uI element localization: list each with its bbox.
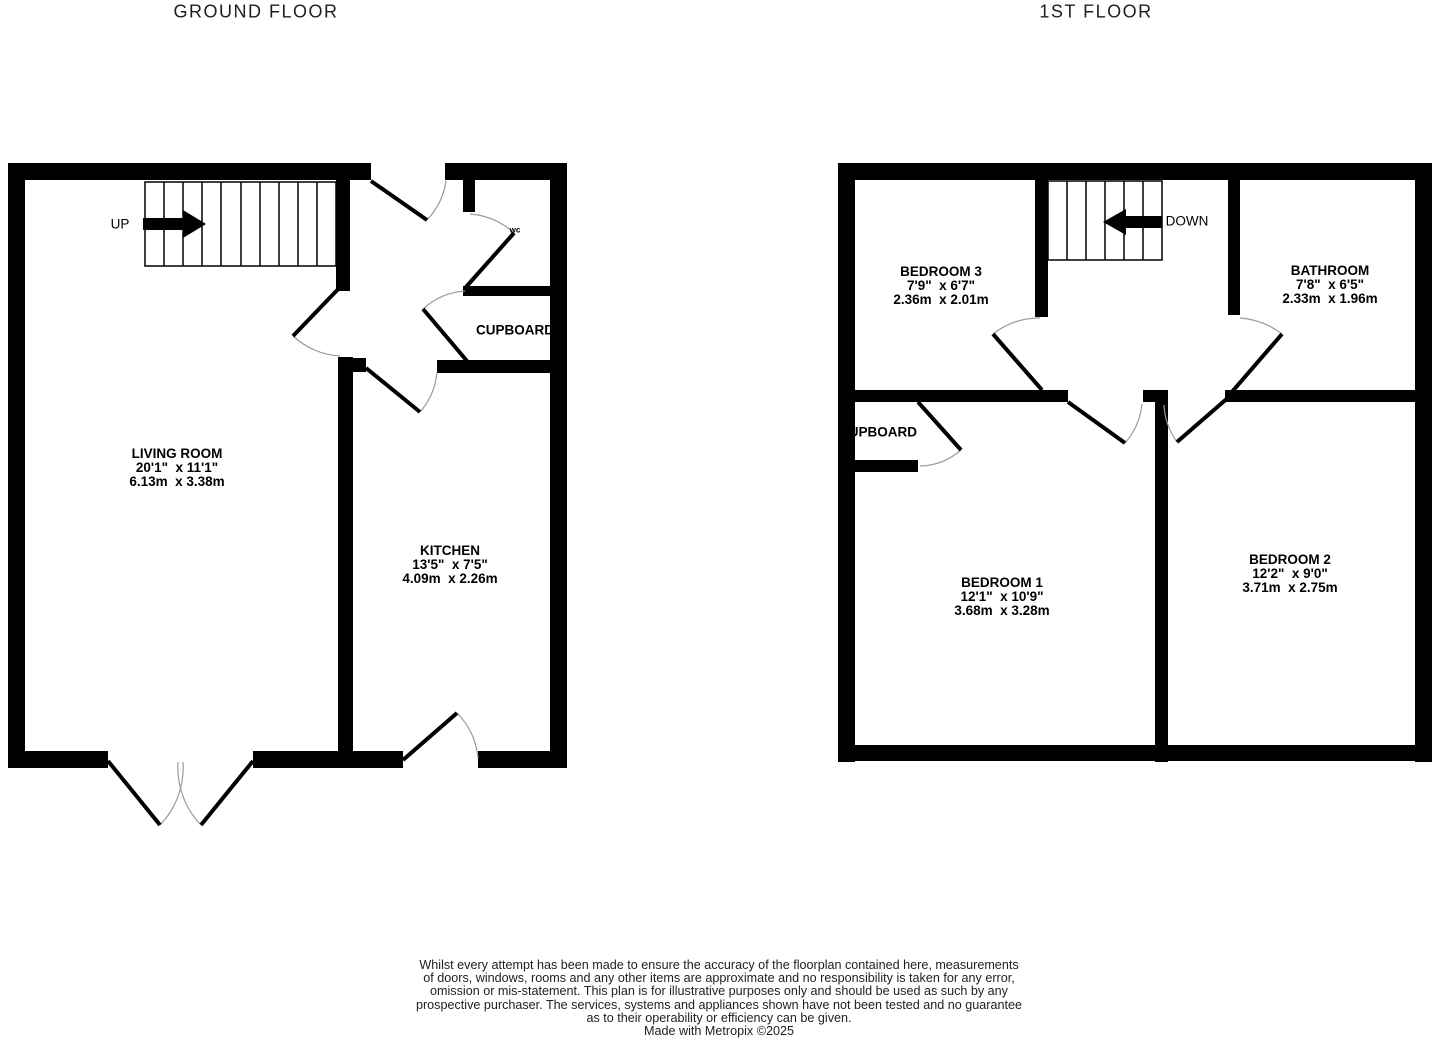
wall — [1225, 390, 1432, 402]
wall — [1228, 163, 1240, 315]
first-floor-plan — [838, 163, 1432, 762]
first-floor-title: 1ST FLOOR — [1039, 2, 1152, 23]
ground-floor-title: GROUND FLOOR — [173, 2, 338, 23]
room-label-cupboard-ground: CUPBOARD — [476, 323, 554, 338]
disclaimer: Whilst every attempt has been made to en… — [416, 959, 1022, 1038]
room-name: BEDROOM 1 — [954, 576, 1049, 590]
wall — [253, 751, 403, 768]
room-name: BEDROOM 2 — [1242, 553, 1337, 567]
room-size-metric: 3.71m x 2.75m — [1242, 581, 1337, 595]
room-size-imperial: 7'9" x 6'7" — [893, 279, 988, 293]
wall — [855, 460, 918, 472]
room-name: BATHROOM — [1282, 264, 1377, 278]
wall — [478, 751, 567, 768]
wall — [550, 163, 567, 768]
wall — [350, 358, 366, 372]
wall — [838, 390, 1068, 402]
wall — [8, 751, 108, 768]
room-size-metric: 3.68m x 3.28m — [954, 604, 1049, 618]
room-size-metric: 6.13m x 3.38m — [129, 475, 224, 489]
disclaimer-line: prospective purchaser. The services, sys… — [416, 999, 1022, 1012]
disclaimer-line: omission or mis-statement. This plan is … — [416, 985, 1022, 998]
room-label-bathroom: BATHROOM 7'8" x 6'5" 2.33m x 1.96m — [1282, 264, 1377, 306]
room-size-imperial: 12'1" x 10'9" — [954, 590, 1049, 604]
wall — [463, 180, 475, 212]
room-label-living-room: LIVING ROOM 20'1" x 11'1" 6.13m x 3.38m — [129, 447, 224, 489]
disclaimer-line: Made with Metropix ©2025 — [416, 1025, 1022, 1038]
room-size-metric: 4.09m x 2.26m — [402, 572, 497, 586]
wall — [445, 163, 567, 180]
wall — [838, 163, 1432, 180]
room-size-imperial: 20'1" x 11'1" — [129, 461, 224, 475]
door-leaves — [108, 181, 514, 825]
room-size-imperial: 13'5" x 7'5" — [402, 558, 497, 572]
wall — [8, 163, 371, 180]
floorplan-drawing — [0, 0, 1432, 1040]
stairs-up-label: UP — [111, 217, 130, 232]
room-label-bedroom-2: BEDROOM 2 12'2" x 9'0" 3.71m x 2.75m — [1242, 553, 1337, 595]
wall — [1155, 390, 1168, 762]
wall — [838, 745, 1432, 761]
room-name: BEDROOM 3 — [893, 265, 988, 279]
room-size-metric: 2.36m x 2.01m — [893, 293, 988, 307]
wall — [463, 286, 550, 296]
wall — [437, 360, 550, 373]
room-size-imperial: 7'8" x 6'5" — [1282, 278, 1377, 292]
down-arrow-icon — [1103, 209, 1162, 235]
room-size-imperial: 12'2" x 9'0" — [1242, 567, 1337, 581]
room-label-bedroom-1: BEDROOM 1 12'1" x 10'9" 3.68m x 3.28m — [954, 576, 1049, 618]
floorplan-canvas: GROUND FLOOR 1ST FLOOR UP DOWN LIVING RO… — [0, 0, 1432, 1040]
up-arrow-icon — [143, 210, 206, 238]
wall — [338, 357, 353, 768]
stairs-down-label: DOWN — [1166, 214, 1209, 229]
room-size-metric: 2.33m x 1.96m — [1282, 292, 1377, 306]
room-name: LIVING ROOM — [129, 447, 224, 461]
ground-floor-plan — [8, 163, 567, 825]
wall — [1415, 163, 1432, 762]
wall — [8, 163, 25, 768]
room-name: KITCHEN — [402, 544, 497, 558]
wall — [1035, 163, 1048, 317]
room-label-kitchen: KITCHEN 13'5" x 7'5" 4.09m x 2.26m — [402, 544, 497, 586]
wall — [336, 163, 350, 291]
room-label-bedroom-3: BEDROOM 3 7'9" x 6'7" 2.36m x 2.01m — [893, 265, 988, 307]
room-label-wc: wc — [510, 226, 521, 235]
room-label-cupboard-first: CUPBOARD — [839, 425, 917, 440]
wall — [838, 163, 855, 762]
